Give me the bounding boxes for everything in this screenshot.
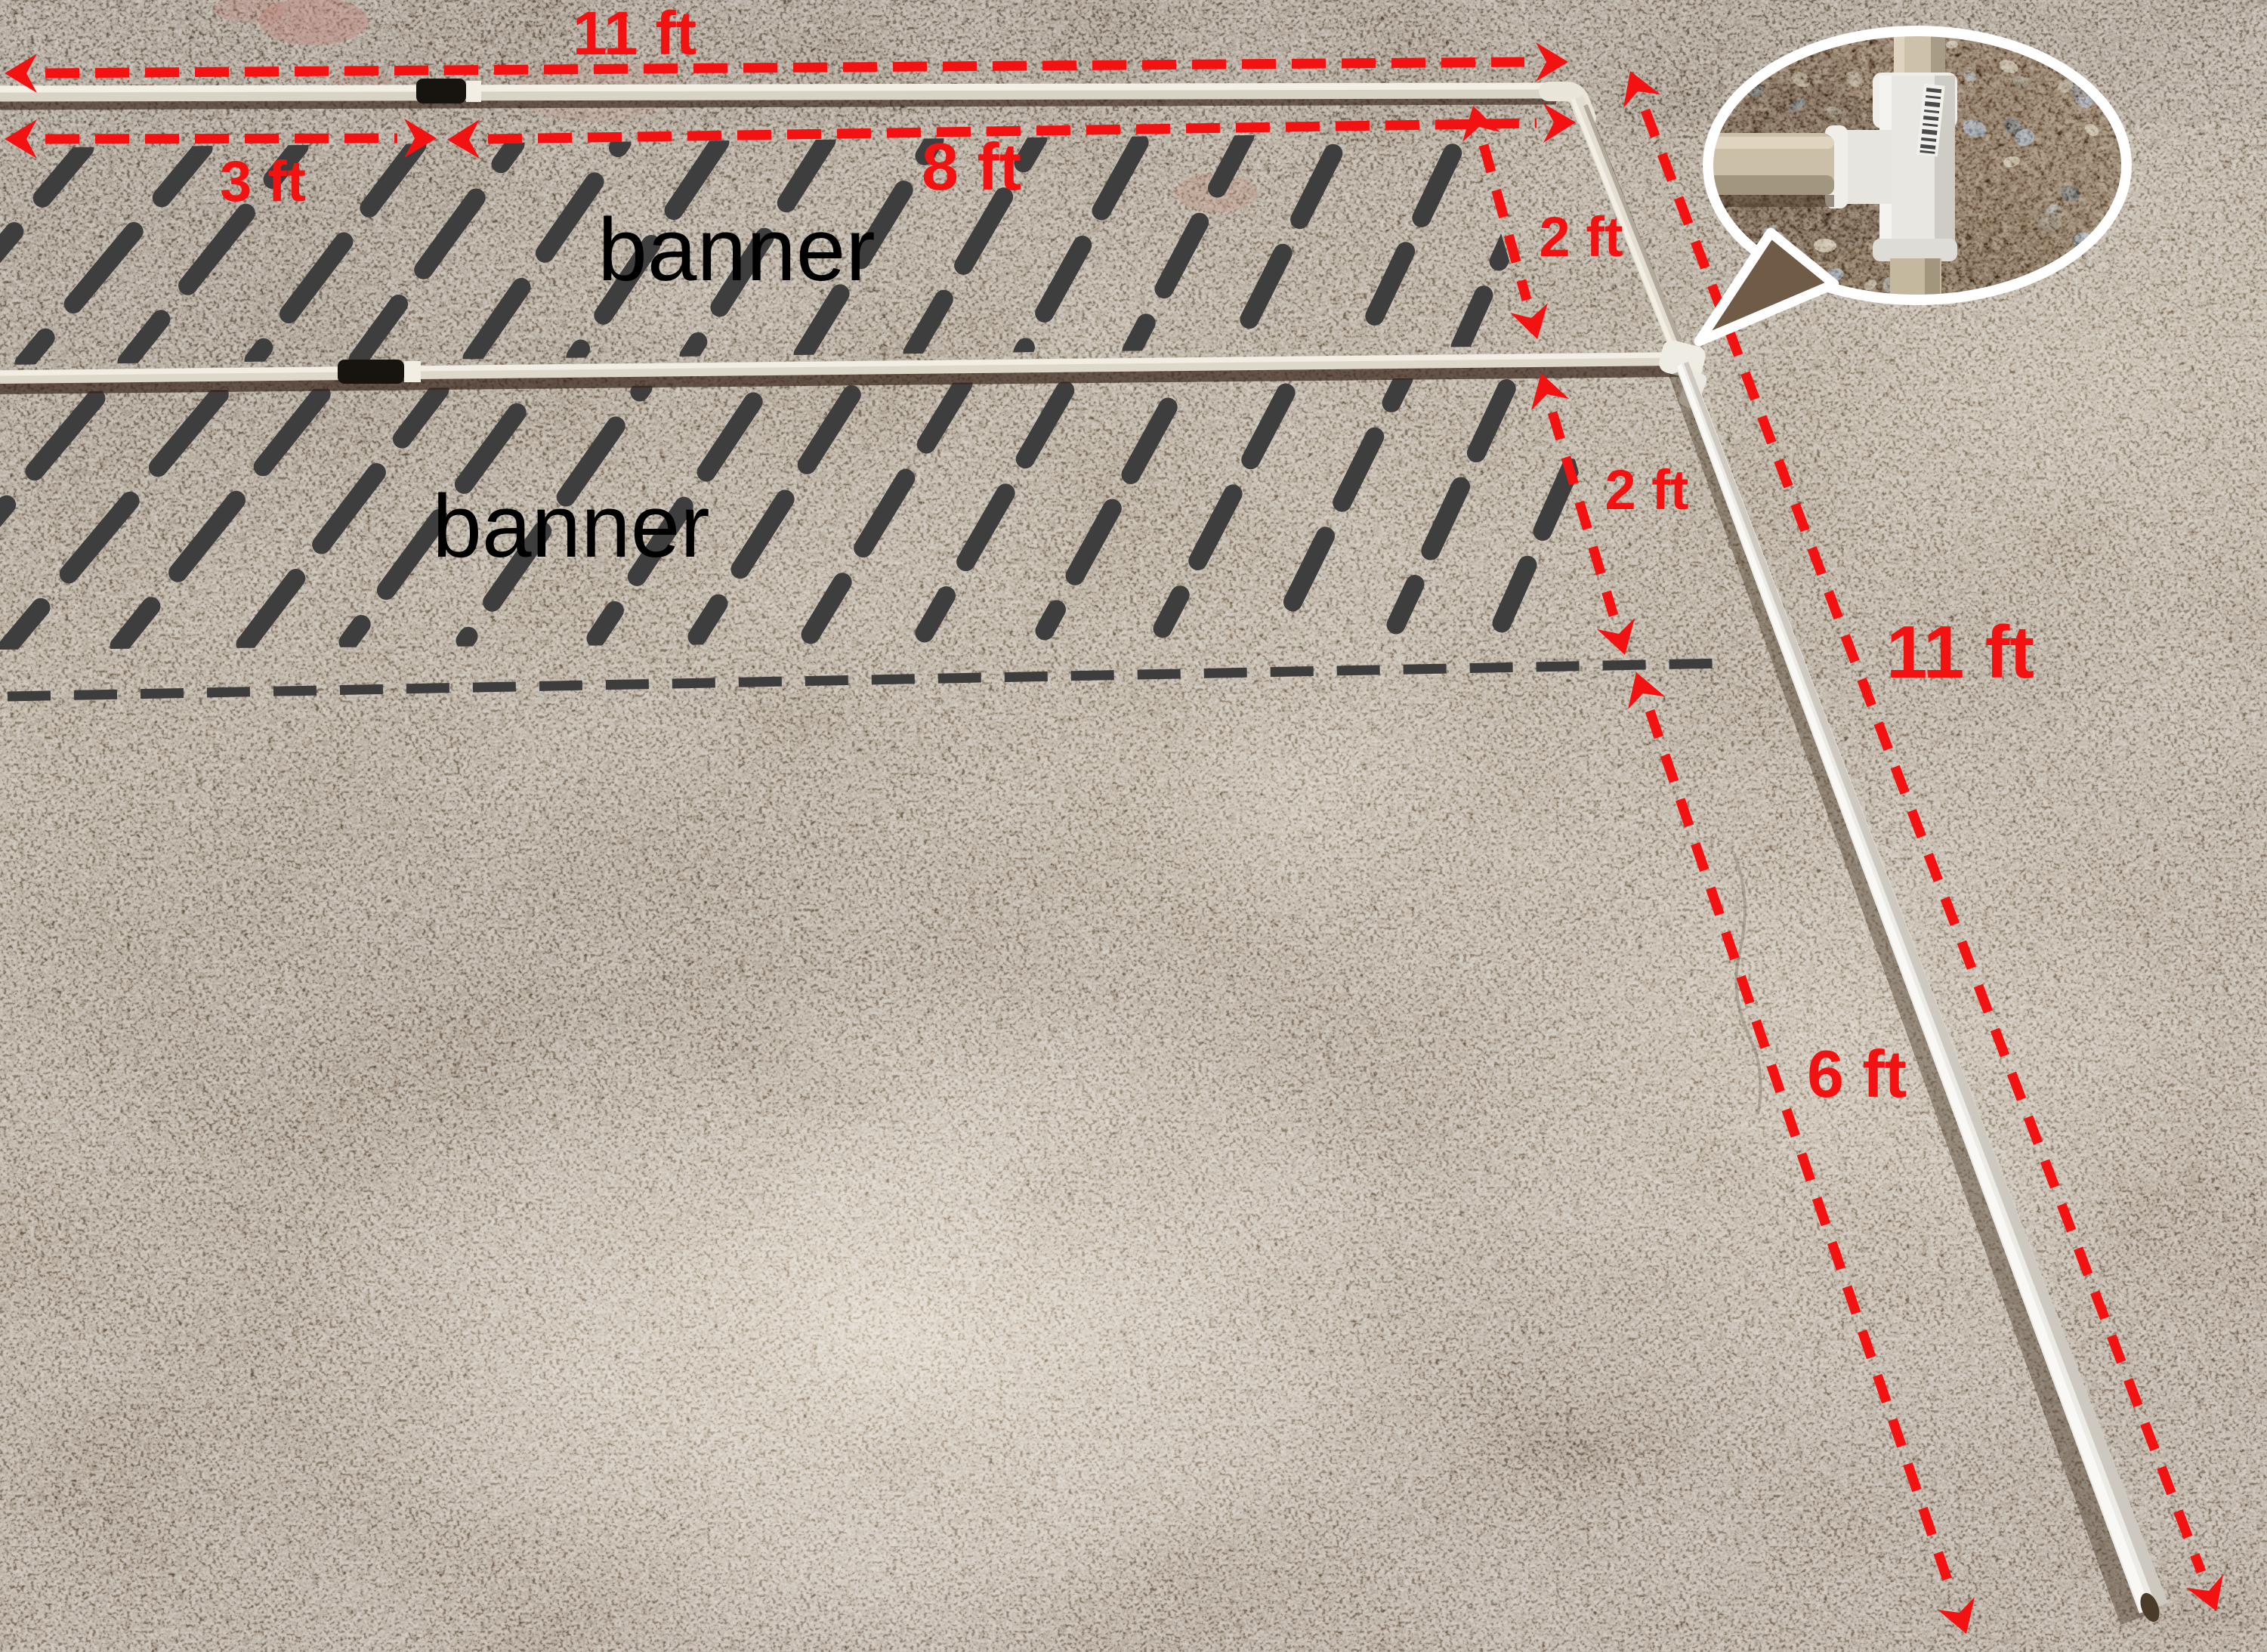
svg-text:banner: banner: [598, 200, 875, 300]
svg-text:2 ft: 2 ft: [1540, 205, 1623, 268]
svg-text:11 ft: 11 ft: [1886, 610, 2034, 693]
svg-text:11 ft: 11 ft: [573, 0, 696, 68]
svg-text:8 ft: 8 ft: [922, 129, 1021, 204]
svg-text:banner: banner: [432, 477, 709, 576]
svg-text:3 ft: 3 ft: [220, 150, 306, 214]
svg-text:2 ft: 2 ft: [1605, 459, 1689, 521]
svg-text:6 ft: 6 ft: [1807, 1036, 1907, 1111]
